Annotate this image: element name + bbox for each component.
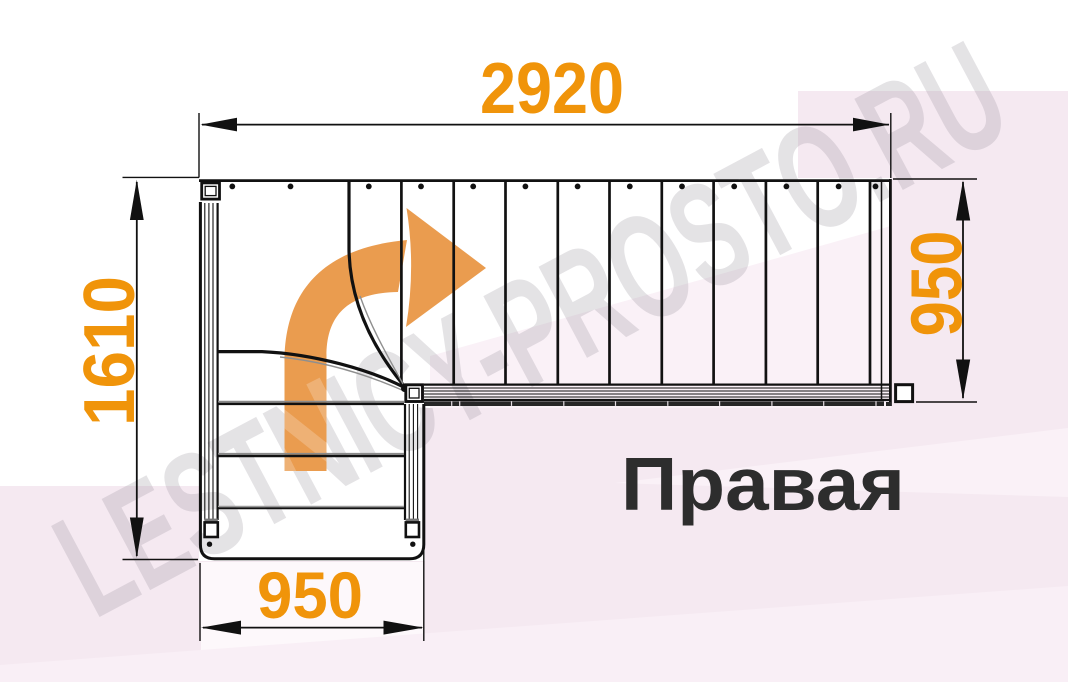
svg-text:950: 950 [257, 558, 363, 632]
svg-text:1610: 1610 [70, 276, 150, 426]
svg-text:Правая: Правая [621, 442, 905, 526]
svg-text:2920: 2920 [480, 49, 624, 129]
svg-text:950: 950 [898, 231, 978, 337]
